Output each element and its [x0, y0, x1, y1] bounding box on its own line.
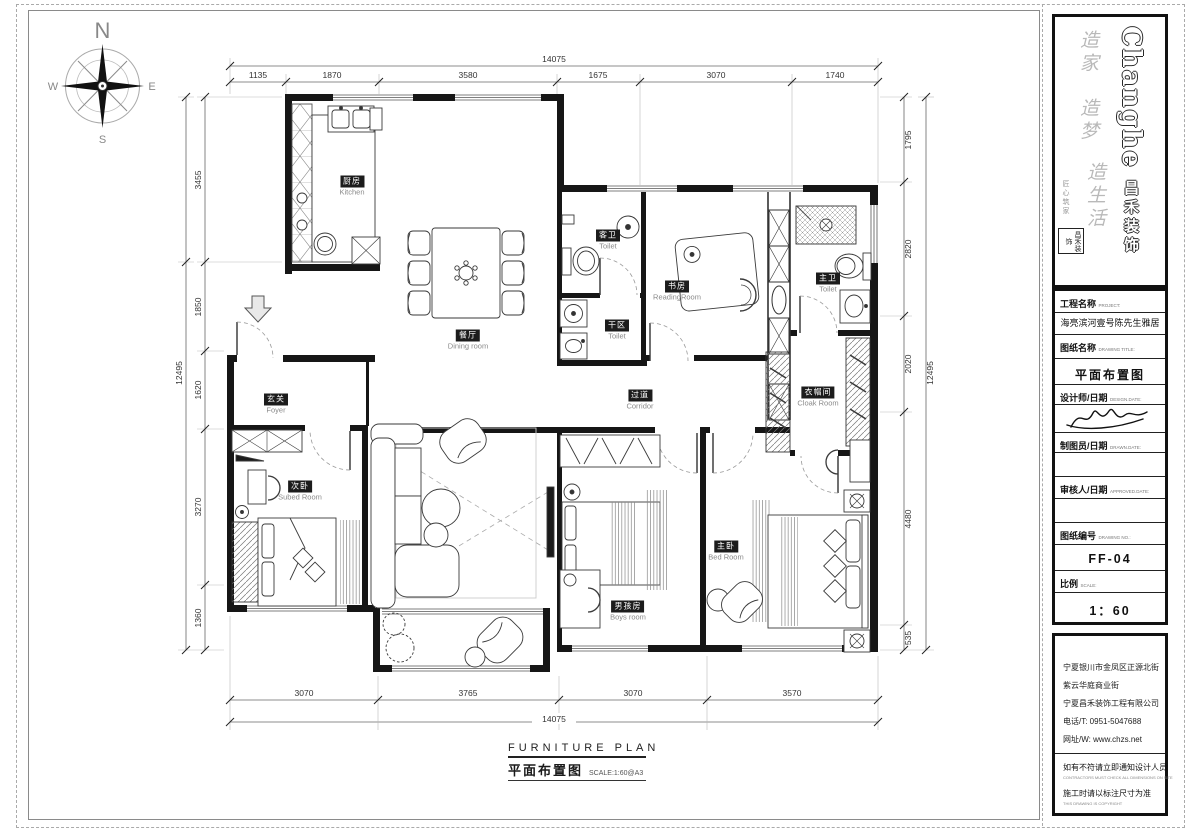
dim-bottom-seg-1: 3070 — [295, 688, 314, 698]
note-1-en: CONTRACTORS MUST CHECK ALL DIMENSIONS ON… — [1063, 775, 1157, 780]
approver-label-row: 审核人/日期 APPROVED.DATE: — [1055, 477, 1165, 499]
master-toilet-fixtures — [796, 206, 871, 323]
room-label-boys: 男孩房 Boys room — [610, 601, 646, 622]
room-label-reading: 书房 ReadingRoom — [653, 281, 701, 302]
brand-logotype-cn: 昌禾装饰 — [1120, 180, 1141, 272]
floor-plan: 14075 1135 1870 3580 1675 3070 1740 3070… — [0, 0, 1200, 833]
entry-arrow-icon — [245, 296, 271, 322]
dim-right-overall: 12495 — [925, 361, 935, 385]
title-block-address: 宁夏银川市金凤区正源北街 紫云华庭商业街 宁夏昌禾装饰工程有限公司 电话/T: … — [1052, 633, 1168, 816]
address-line-1: 宁夏银川市金凤区正源北街 — [1063, 662, 1157, 673]
dim-top-seg-1: 1135 — [249, 70, 268, 80]
number-value-row: FF-04 — [1055, 545, 1165, 571]
note-1-cn: 如有不符请立即通知设计人员 — [1063, 762, 1157, 773]
scale-value-row: 1：60 — [1055, 593, 1165, 620]
calligraphy-note: 匠心筑家 — [1060, 180, 1070, 216]
designer-signature — [1055, 405, 1163, 432]
room-label-foyer: 玄关 Foyer — [264, 394, 288, 415]
designer-label-row: 设计师/日期 DESIGN.DATE: — [1055, 385, 1165, 405]
slogan-2: 造梦 — [1075, 98, 1102, 144]
kitchen-furniture — [292, 104, 382, 264]
drawing-caption: FURNITURE PLAN 平面布置图 SCALE:1:60@A3 — [508, 742, 646, 781]
caption-cn: 平面布置图 — [508, 760, 583, 779]
slogan-1: 造家 — [1075, 30, 1102, 76]
room-label-dry-toilet: 干区 Toilet — [605, 320, 629, 341]
dim-left-seg-2: 1850 — [193, 297, 203, 316]
dim-top-seg-3: 3580 — [459, 70, 478, 80]
dim-left-seg-4: 3270 — [193, 497, 203, 516]
room-label-kitchen: 厨房 Kitchen — [339, 176, 364, 197]
dim-top-seg-5: 3070 — [707, 70, 726, 80]
dim-right-seg-1: 1795 — [903, 130, 913, 149]
room-label-corridor: 过道 Corridor — [626, 390, 653, 411]
dim-top-seg-6: 1740 — [826, 70, 845, 80]
approver-empty-row — [1055, 499, 1165, 523]
dim-left-seg-1: 3455 — [193, 170, 203, 189]
caption-en: FURNITURE PLAN — [508, 742, 646, 758]
drafter-empty-row — [1055, 453, 1165, 477]
room-label-guest-toilet: 客卫 Toilet — [596, 230, 620, 251]
title-block-info: 工程名称 PROJECT: 海亮滨河壹号陈先生雅居 图纸名称 DRAWING T… — [1052, 288, 1168, 625]
balcony-furniture — [383, 612, 528, 669]
dim-top-seg-2: 1870 — [323, 70, 342, 80]
phone-line: 电话/T: 0951-5047688 — [1063, 716, 1157, 727]
slogan-3: 造生活 — [1082, 162, 1109, 231]
designer-signature-row — [1055, 405, 1165, 433]
living-room-furniture — [371, 414, 554, 608]
caption-scale: SCALE:1:60@A3 — [589, 770, 643, 777]
drafter-label-row: 制图员/日期 DRAWN.DATE: — [1055, 433, 1165, 453]
disclaimer-notes: 如有不符请立即通知设计人员 CONTRACTORS MUST CHECK ALL… — [1055, 753, 1165, 806]
dim-left-seg-5: 1360 — [193, 608, 203, 627]
boys-room-furniture — [560, 435, 669, 628]
dim-left-seg-3: 1620 — [193, 380, 203, 399]
dim-bottom-seg-2: 3765 — [459, 688, 478, 698]
project-label-row: 工程名称 PROJECT: — [1055, 291, 1165, 313]
room-label-master-toilet: 主卫 Toilet — [816, 273, 840, 294]
room-label-dining: 餐厅 Dining room — [448, 330, 488, 351]
dim-bottom-seg-3: 3070 — [624, 688, 643, 698]
foyer-furniture — [232, 430, 302, 461]
number-label-row: 图纸编号 DRAWING NO.: — [1055, 523, 1165, 545]
dim-right-seg-3: 2020 — [903, 354, 913, 373]
note-2-en: THIS DRAWING IS COPYRIGHT — [1063, 801, 1157, 806]
dim-right-seg-2: 2820 — [903, 239, 913, 258]
website-line: 网址/W: www.chzs.net — [1063, 734, 1157, 745]
dim-right-seg-5: 535 — [903, 631, 913, 645]
dim-top-seg-4: 1675 — [589, 70, 608, 80]
dim-top-overall: 14075 — [542, 54, 566, 64]
project-value-row: 海亮滨河壹号陈先生雅居 — [1055, 313, 1165, 335]
room-label-master: 主卧 Bed Room — [708, 541, 743, 562]
dim-bottom-seg-4: 3570 — [783, 688, 802, 698]
dining-furniture — [408, 228, 524, 318]
room-label-subed: 次卧 Subed Room — [278, 481, 322, 502]
drawing-title-label-row: 图纸名称 DRAWING TITLE: — [1055, 335, 1165, 359]
dry-area-fixtures — [560, 300, 587, 359]
company-seal: 昌禾装饰 — [1058, 228, 1084, 254]
dim-left-overall: 12495 — [174, 361, 184, 385]
dim-bottom-overall: 14075 — [542, 714, 566, 724]
scale-label-row: 比例 SCALE: — [1055, 571, 1165, 593]
dim-right-seg-4: 4480 — [903, 509, 913, 528]
drawing-title-value-row: 平面布置图 — [1055, 359, 1165, 385]
address-line-2: 紫云华庭商业街 — [1063, 680, 1157, 691]
brand-logotype: Changhe — [1116, 26, 1146, 176]
address-line-3: 宁夏昌禾装饰工程有限公司 — [1063, 698, 1157, 709]
room-label-cloak: 衣帽间 Cloak Room — [797, 387, 838, 408]
note-2-cn: 施工时请以标注尺寸为准 — [1063, 788, 1157, 799]
